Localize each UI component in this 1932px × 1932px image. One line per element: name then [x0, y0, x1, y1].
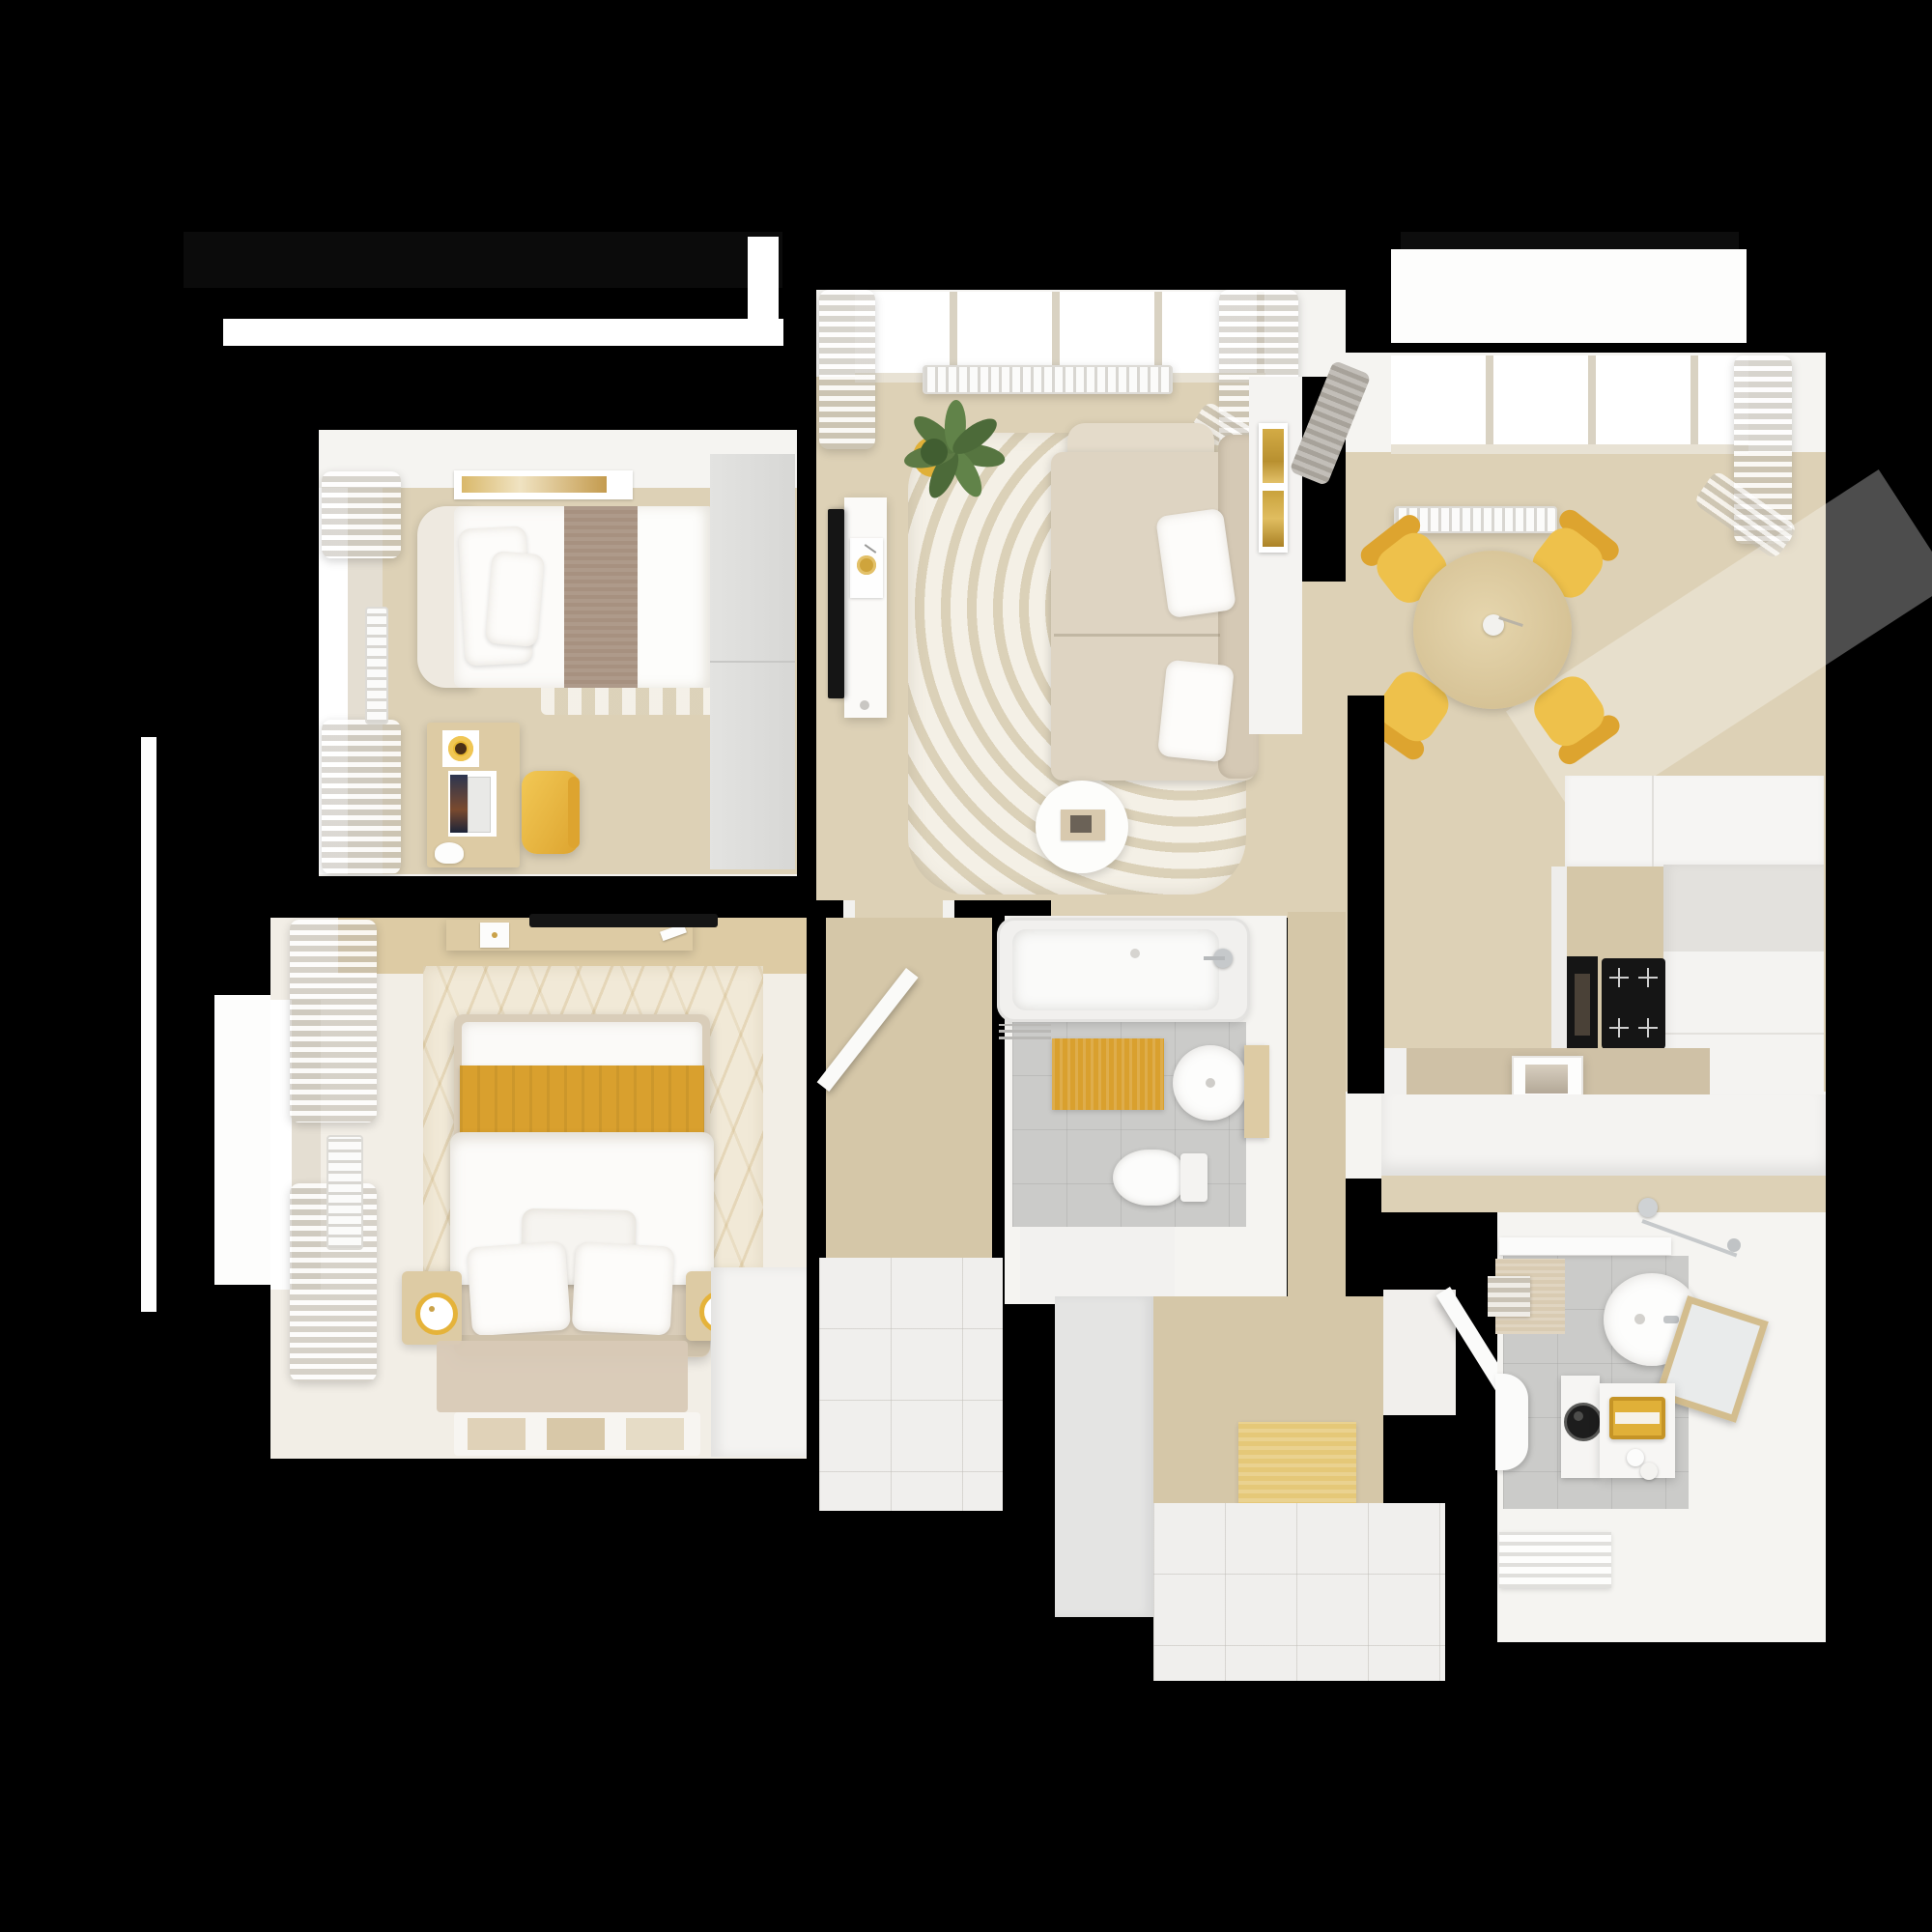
living-media-console — [844, 497, 887, 718]
shower-ledge — [1499, 1237, 1671, 1255]
nightstand-ring-lamp — [415, 1293, 458, 1335]
master-wardrobe — [711, 1267, 807, 1457]
master-clock — [480, 923, 509, 948]
toilet-tank — [1180, 1153, 1207, 1202]
bedroom2-wall-art — [454, 470, 633, 499]
master-radiator — [327, 1135, 363, 1250]
toilet-paper-roll — [1640, 1463, 1658, 1480]
print-2 — [547, 1418, 605, 1450]
record-arm — [865, 544, 877, 554]
sofa-pillow-bottom — [1157, 660, 1235, 763]
entry-tile-floor — [1153, 1503, 1445, 1681]
bathroom-towel-rail — [999, 1024, 1051, 1039]
bedroom2-pillow-small — [485, 551, 545, 647]
towel-radiator — [1499, 1532, 1611, 1588]
bedroom2-laptop — [450, 775, 491, 833]
master-curtain-top — [290, 920, 377, 1122]
master-tv — [529, 914, 718, 927]
record-disc — [857, 555, 876, 575]
doorway-jamb-left — [843, 900, 855, 918]
yellow-towel — [1609, 1397, 1665, 1439]
master-bed — [454, 1014, 710, 1360]
kitchen-oven-glass — [1575, 974, 1590, 1036]
cooktop-burner — [1609, 968, 1629, 987]
toilet-paper-roll — [1627, 1449, 1644, 1466]
bath-mat-mustard — [1052, 1038, 1164, 1110]
bedroom2-laptop-keyboard — [468, 777, 491, 833]
toilet — [1113, 1148, 1206, 1207]
bathtub-basin — [1012, 929, 1219, 1010]
bedroom2-wardrobe — [710, 454, 795, 869]
lamp-center — [429, 1306, 435, 1312]
doorway-wall-seg-left — [816, 900, 843, 918]
sofa-pillow-top — [1155, 508, 1236, 619]
washing-machine-door — [1564, 1403, 1603, 1441]
entry-storage-cabinet — [1055, 1296, 1153, 1617]
kitchen-sink-basin — [1525, 1065, 1568, 1094]
washing-machine — [1561, 1376, 1600, 1478]
bedroom2-coffee-cup — [448, 736, 473, 761]
cooktop-burner — [1638, 1018, 1658, 1037]
toilet-bowl — [1113, 1150, 1184, 1206]
bedroom2-desk — [427, 723, 520, 867]
living-curtain-left — [819, 290, 875, 449]
sofa-seam — [1054, 634, 1220, 637]
bedroom2-taupe-blanket — [564, 506, 639, 688]
shower-handle — [1727, 1238, 1741, 1252]
master-print-rug — [454, 1412, 700, 1456]
bedroom2-coffee — [455, 743, 467, 754]
master-mustard-throw — [460, 1065, 704, 1139]
master-foot-rug — [437, 1341, 688, 1412]
living-coffee-table — [1036, 781, 1128, 873]
washer-door-glint — [1574, 1411, 1583, 1421]
print-1 — [468, 1418, 526, 1450]
light-spill-gap-strip — [748, 237, 779, 336]
bathtub-drain — [1130, 949, 1140, 958]
bedroom2-bed — [417, 502, 724, 692]
doorway-jamb-right — [943, 900, 954, 918]
living-sofa — [1048, 423, 1261, 782]
sink-drain — [1206, 1078, 1215, 1088]
console-knob — [860, 700, 869, 710]
gold-wall-art-frame — [1259, 423, 1288, 553]
bedroom2-desk-chair-back — [568, 777, 580, 848]
plant-center — [921, 439, 948, 466]
kitchen-cabinet-seam — [1652, 776, 1654, 869]
kitchen-oven — [1567, 956, 1598, 1053]
yellow-towel-stripe — [1615, 1412, 1660, 1424]
master-nightstand-left — [402, 1271, 462, 1345]
shower-head — [1638, 1198, 1658, 1217]
entry-door-mat — [1238, 1422, 1356, 1511]
kitchen-cooktop — [1602, 958, 1665, 1049]
bathroom-doorway-floor — [1020, 1227, 1175, 1302]
living-bay-window — [855, 292, 1265, 377]
corridor-floor — [826, 918, 992, 1261]
bedroom2-radiator — [365, 607, 388, 724]
master-clock-dot — [492, 932, 497, 938]
living-plant — [874, 394, 990, 510]
dining-window-sill — [1391, 444, 1748, 454]
gold-art-panel-1 — [1263, 429, 1284, 483]
living-tv — [828, 509, 844, 698]
shower-sink-drain — [1634, 1314, 1645, 1324]
master-pillow-right — [572, 1241, 675, 1335]
east-hall-wall — [1348, 696, 1384, 1094]
chimney-block — [1391, 249, 1747, 343]
dining-window — [1391, 355, 1748, 448]
kitchen-peninsula-floor-strip — [1381, 1176, 1826, 1212]
bedroom2-curtain-top — [322, 471, 401, 558]
kitchen-upper-cabinets — [1565, 776, 1824, 869]
bathroom-sink — [1173, 1045, 1248, 1121]
master-pillow-left — [467, 1241, 571, 1337]
living-record-player — [850, 538, 883, 598]
roof-shade-top-right — [1401, 232, 1739, 251]
light-spill-left-sliver — [141, 737, 156, 1312]
kitchen-peninsula — [1381, 1094, 1826, 1176]
bathtub — [997, 918, 1250, 1022]
bedroom2-desk-lamp — [435, 842, 464, 864]
bedroom2-laptop-screen — [450, 775, 468, 833]
coffee-table-book-deco — [1070, 815, 1092, 833]
light-spill-master-window — [214, 995, 270, 1285]
gold-art-panel-2 — [1263, 491, 1284, 547]
light-spill-top-band — [223, 319, 783, 346]
shower-towel-shelf — [1488, 1276, 1530, 1317]
bedroom2-wardrobe-seam — [710, 661, 795, 663]
bedroom2-curtain-bottom — [322, 720, 401, 874]
cooktop-burner — [1638, 968, 1658, 987]
bedroom2-wall-art-print — [462, 476, 607, 493]
shower-sink-faucet — [1663, 1316, 1679, 1323]
shower-toilet — [1495, 1374, 1528, 1470]
bedroom2-sheet-fold — [638, 506, 715, 688]
east-hall-floor — [1288, 912, 1346, 1296]
roof-shade-top-left — [184, 232, 782, 288]
bath-faucet-spout — [1204, 956, 1225, 960]
floor-plan-canvas — [0, 0, 1932, 1932]
coffee-table-book — [1061, 810, 1105, 840]
living-radiator — [923, 365, 1173, 394]
cooktop-burner — [1609, 1018, 1629, 1037]
dining-table — [1413, 551, 1572, 709]
bathroom-wood-shelf — [1244, 1045, 1269, 1138]
print-3 — [626, 1418, 684, 1450]
corridor-tile-floor — [819, 1258, 1003, 1511]
bedroom2-desk-chair — [522, 771, 580, 854]
